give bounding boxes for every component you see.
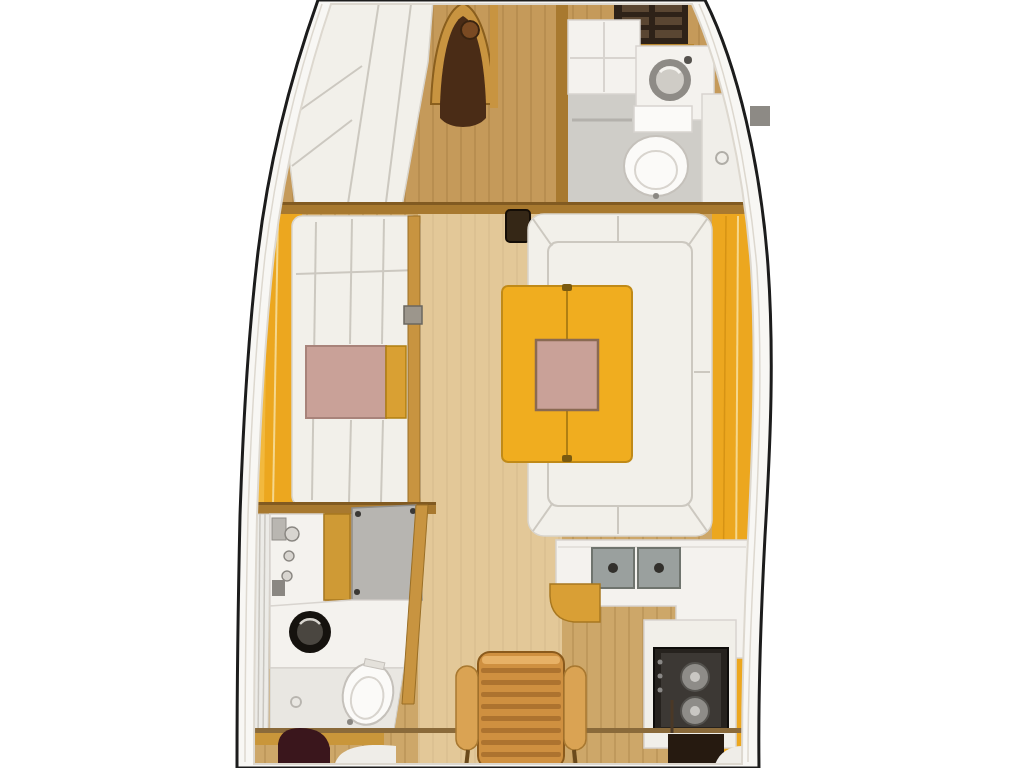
deck-fitting [750, 106, 770, 126]
arch-porthole-knob [461, 21, 479, 39]
fore-head-toilet: forward-head-toilet [624, 136, 688, 196]
handrail-port [240, 728, 462, 733]
steps-arm-right [564, 666, 586, 750]
aft-bulkhead-shadow [250, 502, 436, 505]
faucet-dot [684, 56, 692, 64]
stove-knob-1 [658, 660, 663, 665]
burner-top-center [690, 672, 700, 682]
toilet-hinge-dot [653, 193, 659, 199]
vanity-dark-fixture [272, 580, 285, 596]
dinette-table-inset-pink [536, 340, 598, 410]
table-notch-bottom [562, 455, 572, 462]
yacht-floorplan: sailboat-yacht-interior-floor-plan-top-v… [0, 0, 1024, 768]
forward-bulkhead-shadow [256, 202, 756, 205]
vanity-knob-3 [282, 571, 292, 581]
vanity-knob-2 [284, 551, 294, 561]
vanity-knob-1 [285, 527, 299, 541]
shower-screw-1 [355, 511, 361, 517]
galley-corner-cabinet [550, 584, 600, 622]
stove-knob-2 [658, 674, 663, 679]
arch-side-post [490, 0, 498, 108]
handrail-starboard [578, 728, 758, 733]
head-forward-wall [556, 0, 568, 214]
aft-locker-dark: aft-cabin-starboard [668, 734, 724, 768]
steps-arm-left [456, 666, 478, 750]
steps-top-highlight [482, 656, 560, 664]
stove-knob-3 [658, 688, 663, 693]
interior: forward-cabin-arched-doorway bow-hatch-s… [230, 0, 790, 768]
vanity-fixture-tray [272, 518, 286, 540]
burner-bottom-center [690, 706, 700, 716]
toilet-floor-dot [347, 719, 353, 725]
shower-screw-4 [354, 589, 360, 595]
sink-drain-right [654, 563, 664, 573]
aft-head-cabinet-amber [324, 514, 350, 600]
settee-side-fitting [404, 306, 422, 324]
floorplan-canvas: sailboat-yacht-interior-floor-plan-top-v… [0, 0, 1024, 768]
table-notch-top [562, 284, 572, 291]
settee-front-trim [408, 216, 420, 506]
mast-post: mast-post [506, 210, 530, 242]
sink-drain-left [608, 563, 618, 573]
toilet-cistern [634, 106, 692, 132]
settee-table-pink: port-settee-table [306, 346, 386, 418]
settee-table-leaf [386, 346, 406, 418]
